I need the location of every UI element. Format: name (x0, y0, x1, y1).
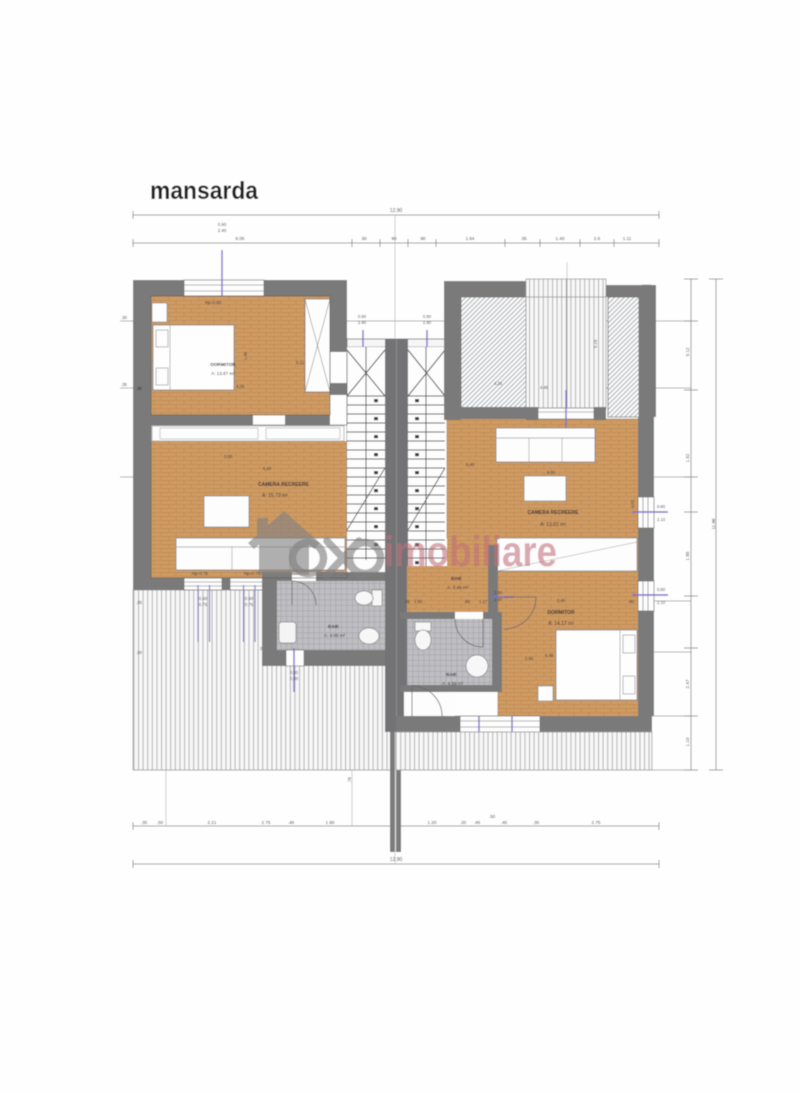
svg-text:1.40: 1.40 (494, 597, 503, 602)
svg-text:1.10: 1.10 (685, 737, 690, 746)
svg-text:4.25: 4.25 (494, 381, 503, 386)
svg-text:A: 15.73 m²: A: 15.73 m² (262, 493, 288, 499)
svg-text:2.47: 2.47 (685, 679, 690, 688)
svg-text:3.12: 3.12 (685, 347, 690, 356)
svg-text:0.60: 0.60 (290, 670, 299, 675)
svg-text:.50: .50 (157, 820, 164, 825)
svg-text:CAMERA RECREERE: CAMERA RECREERE (528, 510, 580, 516)
svg-text:CAMERA RECREERE: CAMERA RECREERE (258, 482, 310, 488)
svg-text:0.90: 0.90 (199, 596, 208, 601)
svg-text:BAIE: BAIE (451, 576, 462, 581)
svg-text:12.90: 12.90 (390, 857, 403, 863)
svg-text:1.40: 1.40 (556, 236, 565, 241)
svg-text:0.75: 0.75 (199, 602, 208, 607)
svg-text:0.60: 0.60 (290, 676, 299, 681)
svg-text:BAIE: BAIE (446, 672, 457, 677)
svg-text:5.48: 5.48 (263, 466, 272, 471)
svg-text:12.90: 12.90 (390, 208, 403, 214)
svg-text:6.05: 6.05 (236, 236, 245, 241)
svg-text:.35: .35 (141, 820, 148, 825)
svg-text:1.90: 1.90 (326, 820, 335, 825)
svg-text:Hp=0.90: Hp=0.90 (205, 300, 222, 305)
svg-text:imobiliare: imobiliare (384, 528, 557, 576)
svg-text:.35: .35 (121, 382, 127, 387)
svg-text:.30: .30 (121, 315, 127, 320)
svg-text:.90: .90 (628, 599, 634, 604)
svg-text:35: 35 (521, 236, 527, 241)
svg-text:1.46: 1.46 (243, 351, 248, 360)
svg-text:A: 4.59 m²: A: 4.59 m² (442, 681, 464, 686)
svg-text:.60: .60 (464, 599, 470, 604)
svg-text:1.52: 1.52 (685, 453, 690, 462)
svg-text:.35: .35 (404, 599, 410, 604)
svg-text:.78: .78 (347, 777, 352, 783)
svg-text:1.50: 1.50 (494, 590, 503, 595)
svg-text:5.19: 5.19 (593, 339, 598, 348)
svg-text:4.00: 4.00 (630, 499, 635, 508)
svg-text:4.25: 4.25 (236, 384, 245, 389)
svg-text:5.48: 5.48 (466, 462, 475, 467)
svg-text:.20: .20 (460, 820, 467, 825)
svg-text:5.11: 5.11 (296, 360, 305, 365)
svg-text:.30: .30 (136, 650, 142, 655)
svg-text:.40: .40 (501, 820, 508, 825)
svg-text:1.85: 1.85 (685, 551, 690, 560)
svg-text:0.90: 0.90 (245, 596, 254, 601)
svg-text:A: 4.00 m²: A: 4.00 m² (324, 633, 346, 638)
svg-text:.30: .30 (533, 820, 540, 825)
svg-text:0.90: 0.90 (423, 314, 432, 319)
svg-text:2.75: 2.75 (262, 820, 271, 825)
svg-text:BAIE: BAIE (328, 624, 339, 629)
svg-text:11.96: 11.96 (711, 518, 716, 530)
svg-text:Hp=0.75: Hp=0.75 (244, 571, 261, 576)
svg-text:2.40: 2.40 (557, 598, 566, 603)
svg-text:2.40: 2.40 (358, 320, 367, 325)
svg-text:0.75: 0.75 (245, 602, 254, 607)
svg-text:.35: .35 (136, 386, 142, 391)
svg-text:.35: .35 (136, 600, 142, 605)
svg-text:mansarda: mansarda (150, 177, 259, 205)
svg-text:6.00: 6.00 (547, 470, 556, 475)
svg-text:Hp=0.75: Hp=0.75 (192, 571, 209, 576)
svg-text:5.48: 5.48 (545, 653, 554, 658)
svg-text:A: 14.17 m²: A: 14.17 m² (548, 621, 574, 627)
svg-text:.50: .50 (489, 814, 496, 819)
svg-text:2.40: 2.40 (218, 228, 227, 233)
svg-text:3.08: 3.08 (224, 454, 233, 459)
svg-text:DORMITOR: DORMITOR (211, 362, 237, 367)
svg-text:A: 3.46 m²: A: 3.46 m² (447, 585, 469, 590)
svg-text:90: 90 (420, 236, 426, 241)
svg-text:2.10: 2.10 (657, 517, 666, 522)
svg-text:1.17: 1.17 (479, 599, 488, 604)
svg-text:A: 13.67 m²: A: 13.67 m² (211, 371, 235, 376)
svg-text:.46: .46 (474, 820, 481, 825)
svg-text:0.60: 0.60 (657, 504, 666, 509)
svg-text:0.90: 0.90 (218, 222, 227, 227)
svg-text:90: 90 (391, 236, 397, 241)
svg-text:2.21: 2.21 (208, 820, 217, 825)
svg-text:1.20: 1.20 (428, 820, 437, 825)
svg-text:2.6: 2.6 (594, 236, 601, 241)
svg-text:1.55: 1.55 (414, 599, 423, 604)
svg-text:30: 30 (361, 236, 367, 241)
svg-text:.46: .46 (288, 820, 295, 825)
svg-text:2.40: 2.40 (423, 320, 432, 325)
svg-text:2.10: 2.10 (657, 600, 666, 605)
svg-text:4.45: 4.45 (540, 385, 549, 390)
svg-text:2.75: 2.75 (592, 820, 601, 825)
svg-text:1.11: 1.11 (623, 236, 632, 241)
svg-text:2.46: 2.46 (525, 656, 534, 661)
svg-text:0.90: 0.90 (358, 314, 367, 319)
svg-text:1.64: 1.64 (466, 236, 475, 241)
svg-text:0.60: 0.60 (657, 587, 666, 592)
svg-text:DORMITOR: DORMITOR (547, 610, 575, 616)
